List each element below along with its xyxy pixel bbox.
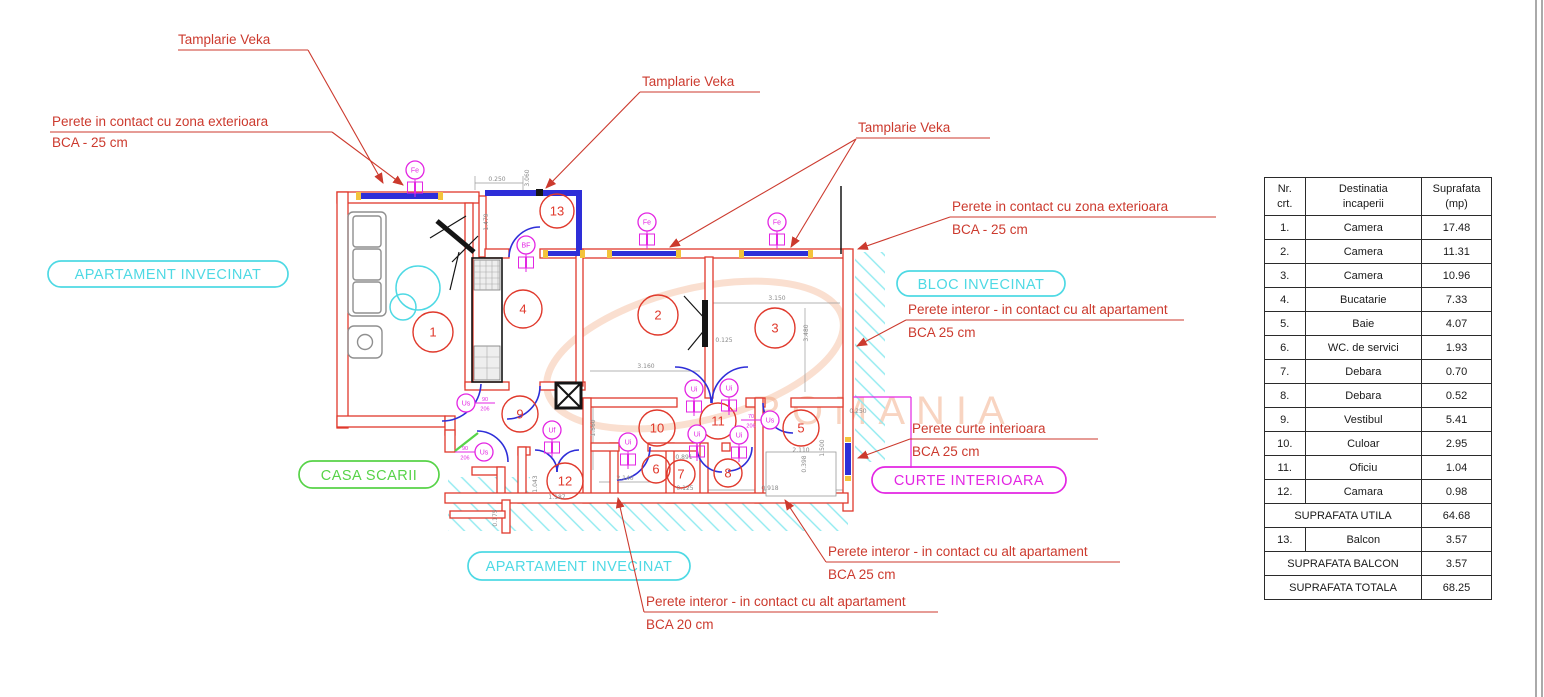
table-cell: 68.25 (1422, 576, 1492, 600)
callout-text-line: BCA 25 cm (908, 325, 976, 340)
dimension-label: 3.160 (637, 363, 654, 370)
svg-text:Us: Us (480, 450, 489, 457)
dimension-label: 3.060 (524, 169, 531, 186)
table-row: 9.Vestibul5.41 (1265, 408, 1492, 432)
header-line: Nr. (1267, 182, 1303, 196)
callout-tamplarie-veka-2: Tamplarie Veka (546, 74, 760, 188)
table-row: 7.Debara0.70 (1265, 360, 1492, 384)
dimension-label: 3.480 (803, 324, 810, 341)
table-row: 12.Camara0.98 (1265, 480, 1492, 504)
zone-label-text: BLOC INVECINAT (918, 277, 1045, 293)
header-line: crt. (1267, 197, 1303, 211)
table-cell: 17.48 (1422, 216, 1492, 240)
callouts: Tamplarie Veka Perete in contact cu zona… (50, 32, 1216, 632)
dimension-label: 0.125 (676, 485, 693, 492)
svg-text:8: 8 (724, 466, 731, 481)
svg-text:9: 9 (516, 407, 523, 422)
svg-text:4: 4 (519, 302, 526, 317)
table-cell: Camera (1305, 240, 1422, 264)
table-cell: Debara (1305, 360, 1422, 384)
dimension-label: 0.250 (488, 176, 505, 183)
table-cell: 9. (1265, 408, 1306, 432)
table-cell: 6. (1265, 336, 1306, 360)
hatch-right (855, 252, 885, 462)
table-cell: Camera (1305, 264, 1422, 288)
zone-bloc-invecinat: BLOC INVECINAT (897, 271, 1065, 296)
table-cell: Debara (1305, 384, 1422, 408)
table-cell: Vestibul (1305, 408, 1422, 432)
room-number-3: 3 (755, 308, 795, 348)
table-cell: 13. (1265, 528, 1306, 552)
table-row: 1.Camera17.48 (1265, 216, 1492, 240)
table-cell: 0.52 (1422, 384, 1492, 408)
zone-apartament-invecinat-left: APARTAMENT INVECINAT (48, 261, 288, 287)
header-destinatia: Destinatia incaperii (1305, 178, 1422, 216)
kitchen-counter (472, 258, 502, 382)
symbol-fe: Fe (638, 213, 656, 249)
leader-line (332, 132, 403, 185)
table-row: 11.Oficiu1.04 (1265, 456, 1492, 480)
table-cell: SUPRAFATA BALCON (1265, 552, 1422, 576)
zone-curte-interioara: CURTE INTERIOARA (872, 467, 1066, 493)
table-cell: 0.98 (1422, 480, 1492, 504)
table-cell: 1.93 (1422, 336, 1492, 360)
zone-apartament-invecinat-bottom: APARTAMENT INVECINAT (468, 552, 690, 580)
svg-text:3: 3 (771, 321, 778, 336)
table-cell: WC. de servici (1305, 336, 1422, 360)
table-cell: 8. (1265, 384, 1306, 408)
dimension-label: 1.479 (483, 213, 490, 230)
dimension-label: 1.043 (532, 475, 539, 492)
callout-tamplarie-veka-3: Tamplarie Veka (670, 120, 990, 247)
room-number-4: 4 (504, 290, 542, 328)
dimension-label: 0.891 (675, 454, 692, 461)
table-cell: 2. (1265, 240, 1306, 264)
symbol-fe: Fe (768, 213, 786, 249)
svg-text:12: 12 (558, 474, 572, 489)
side-table (348, 326, 382, 358)
callout-text-line: BCA 20 cm (646, 617, 714, 632)
table-cell: 5.41 (1422, 408, 1492, 432)
svg-text:90: 90 (482, 397, 488, 403)
dimension-label: 0.918 (761, 485, 778, 492)
dimension-label: 0.175 (492, 509, 499, 526)
table-cell: Camera (1305, 216, 1422, 240)
table-cell: 4. (1265, 288, 1306, 312)
svg-text:Ui: Ui (691, 387, 698, 394)
header-line: (mp) (1424, 197, 1489, 211)
table-cell: 3.57 (1422, 552, 1492, 576)
callout-text-line: Perete in contact cu zona exterioara (52, 114, 269, 129)
plant-circle-small (390, 294, 416, 320)
table-cell: Culoar (1305, 432, 1422, 456)
table-cell: 1.04 (1422, 456, 1492, 480)
svg-text:Fe: Fe (411, 168, 419, 175)
table-row: SUPRAFATA UTILA64.68 (1265, 504, 1492, 528)
table-cell: 10. (1265, 432, 1306, 456)
callout-text-line: Tamplarie Veka (858, 120, 951, 135)
callout-perete-interior-1: Perete interor - in contact cu alt apart… (857, 302, 1184, 346)
svg-text:Ui: Ui (694, 432, 701, 439)
leader-line (308, 50, 383, 183)
window-small (546, 251, 582, 256)
symbol-uf: Uf (543, 421, 561, 457)
svg-text:Ui: Ui (726, 386, 733, 393)
svg-text:Fe: Fe (773, 220, 781, 227)
table-cell: Balcon (1305, 528, 1422, 552)
window-room2 (610, 251, 678, 256)
svg-text:11: 11 (711, 414, 725, 429)
header-suprafata: Suprafata (mp) (1422, 178, 1492, 216)
room-number-2: 2 (638, 295, 678, 335)
table-cell: 7.33 (1422, 288, 1492, 312)
table-cell: 11. (1265, 456, 1306, 480)
header-line: incaperii (1308, 197, 1420, 211)
room-number-9: 9 (502, 396, 538, 432)
callout-text-line: Tamplarie Veka (178, 32, 271, 47)
dimension-label: 0.398 (801, 455, 808, 472)
table-cell: SUPRAFATA UTILA (1265, 504, 1422, 528)
zone-label-text: APARTAMENT INVECINAT (75, 267, 262, 283)
plant-circle-large (396, 266, 440, 310)
callout-tamplarie-veka-1: Tamplarie Veka (178, 32, 383, 183)
floor-plan-sheet: ROMANIA (0, 0, 1544, 697)
table-row: 10.Culoar2.95 (1265, 432, 1492, 456)
table-row: 6.WC. de servici1.93 (1265, 336, 1492, 360)
dimension-label: 1.187 (548, 494, 565, 501)
callout-text-line: Tamplarie Veka (642, 74, 735, 89)
table-cell: Oficiu (1305, 456, 1422, 480)
table-cell: SUPRAFATA TOTALA (1265, 576, 1422, 600)
table-row: 3.Camera10.96 (1265, 264, 1492, 288)
callout-perete-exterior-2: Perete in contact cu zona exterioara BCA… (858, 199, 1216, 249)
zone-label-text: CURTE INTERIOARA (894, 473, 1044, 489)
table-cell: 3.57 (1422, 528, 1492, 552)
table-row: SUPRAFATA BALCON3.57 (1265, 552, 1492, 576)
svg-text:70: 70 (748, 414, 754, 420)
svg-text:Us: Us (766, 418, 775, 425)
symbol-bf: BF (517, 236, 535, 272)
zone-label-text: APARTAMENT INVECINAT (486, 559, 673, 575)
svg-text:6: 6 (652, 462, 659, 477)
leader-line (670, 139, 856, 247)
dimension-label: 0.125 (715, 337, 732, 344)
wall-joint-mark (536, 189, 543, 196)
header-line: Suprafata (1424, 182, 1489, 196)
svg-text:206: 206 (746, 424, 755, 430)
dimension-label: 3.150 (768, 295, 785, 302)
table-cell: 7. (1265, 360, 1306, 384)
svg-text:Fe: Fe (643, 220, 651, 227)
window-room3 (742, 251, 810, 256)
svg-text:7: 7 (677, 467, 684, 482)
window-right-wall (845, 443, 851, 475)
table-row: 4.Bucatarie7.33 (1265, 288, 1492, 312)
symbol-ui: Ui (619, 433, 637, 469)
svg-text:Uf: Uf (549, 428, 556, 435)
zone-label-text: CASA SCARII (321, 468, 418, 484)
zone-casa-scarii: CASA SCARII (299, 461, 439, 488)
table-cell: 0.70 (1422, 360, 1492, 384)
svg-text:13: 13 (550, 204, 564, 219)
shaft-box (556, 383, 581, 408)
table-cell: 11.31 (1422, 240, 1492, 264)
table-cell: 12. (1265, 480, 1306, 504)
room-number-13: 13 (540, 194, 574, 228)
callout-text-line: BCA - 25 cm (952, 222, 1028, 237)
callout-text-line: Perete interor - in contact cu alt apart… (908, 302, 1168, 317)
table-cell: Baie (1305, 312, 1422, 336)
table-cell: 2.95 (1422, 432, 1492, 456)
table-cell: 64.68 (1422, 504, 1492, 528)
table-row: 13.Balcon3.57 (1265, 528, 1492, 552)
dimension-label: 1.500 (819, 439, 826, 456)
symbol-us: Us90206 (457, 394, 495, 413)
svg-text:Ui: Ui (736, 433, 743, 440)
svg-text:BF: BF (522, 243, 531, 250)
table-cell: Camara (1305, 480, 1422, 504)
callout-text-line: BCA - 25 cm (52, 135, 128, 150)
table-row: 8.Debara0.52 (1265, 384, 1492, 408)
dimension-label: 0.250 (849, 408, 866, 415)
svg-text:2: 2 (654, 308, 661, 323)
symbol-ui: Ui (730, 426, 748, 462)
table-row: 2.Camera11.31 (1265, 240, 1492, 264)
callout-text-line: Perete interor - in contact cu alt apart… (646, 594, 906, 609)
table-cell: 4.07 (1422, 312, 1492, 336)
room-number-8: 8 (714, 459, 742, 487)
leader-line (858, 217, 950, 249)
dimension-label: 1.560 (590, 419, 597, 436)
svg-text:Us: Us (462, 401, 471, 408)
svg-text:Ui: Ui (625, 440, 632, 447)
area-table: Nr. crt. Destinatia incaperii Suprafata … (1264, 177, 1492, 600)
callout-text-line: Perete in contact cu zona exterioara (952, 199, 1169, 214)
header-nr-crt: Nr. crt. (1265, 178, 1306, 216)
leader-line (546, 92, 640, 188)
table-cell: 1. (1265, 216, 1306, 240)
svg-text:1: 1 (429, 325, 436, 340)
callout-text-line: BCA 25 cm (828, 567, 896, 582)
window-room1 (360, 193, 440, 199)
symbol-ui: Ui (685, 380, 703, 416)
section-mark-room2 (684, 296, 706, 350)
callout-text-line: Perete interor - in contact cu alt apart… (828, 544, 1088, 559)
callout-text-line: Perete curte interioara (912, 421, 1046, 436)
table-cell: 5. (1265, 312, 1306, 336)
table-row: SUPRAFATA TOTALA68.25 (1265, 576, 1492, 600)
table-row: 5.Baie4.07 (1265, 312, 1492, 336)
svg-text:10: 10 (650, 421, 664, 436)
svg-text:5: 5 (797, 421, 804, 436)
table-cell: 3. (1265, 264, 1306, 288)
svg-text:206: 206 (480, 407, 489, 413)
dimension-label: 2.140 (616, 475, 633, 482)
dimension-label: 2.110 (792, 447, 809, 454)
leader-line (791, 139, 856, 247)
svg-text:206: 206 (460, 456, 469, 462)
callout-text-line: BCA 25 cm (912, 444, 980, 459)
table-header-row: Nr. crt. Destinatia incaperii Suprafata … (1265, 178, 1492, 216)
table-cell: Bucatarie (1305, 288, 1422, 312)
svg-text:90: 90 (462, 446, 468, 452)
header-line: Destinatia (1308, 182, 1420, 196)
room-number-1: 1 (413, 312, 453, 352)
table-cell: 10.96 (1422, 264, 1492, 288)
